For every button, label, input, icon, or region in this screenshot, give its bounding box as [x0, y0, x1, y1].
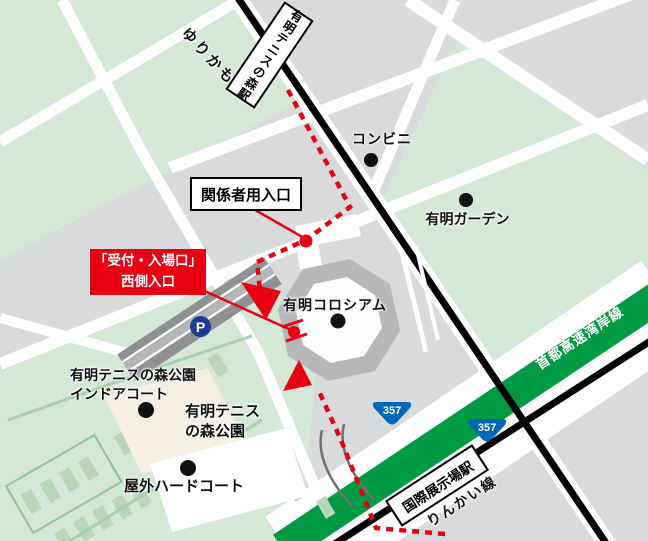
- staff-entrance-dot: [300, 235, 313, 248]
- indoor-court-dot: [138, 402, 154, 418]
- staff-entrance-box: 関係者用入口: [190, 177, 302, 211]
- parking-icon: P: [190, 316, 211, 337]
- ariake-garden-dot: [459, 193, 473, 207]
- indoor-court-label: 有明テニスの森公園 インドアコート: [70, 366, 196, 404]
- tennis-park-line2: の森公園: [185, 422, 260, 442]
- coliseum-label: 有明コロシアム: [283, 296, 386, 315]
- ariake-garden-label: 有明ガーデン: [421, 210, 514, 229]
- indoor-court-line1: 有明テニスの森公園: [70, 366, 196, 385]
- shield-number: 357: [478, 422, 496, 434]
- shield-number: 357: [383, 405, 401, 417]
- convenience-store-label: コンビニ: [341, 130, 423, 149]
- parking-letter: P: [196, 319, 205, 335]
- reception-line1: 「受付・入場口」: [94, 251, 202, 272]
- staff-entrance-label: 関係者用入口: [201, 184, 291, 205]
- outdoor-court-label: 屋外ハードコート: [121, 477, 247, 497]
- area-map: 357 357 ゆりかもめ 有明テニスの森駅 コンビニ 関係者用入口 有明ガーデ…: [0, 0, 648, 541]
- tennis-park-label: 有明テニス の森公園: [185, 402, 260, 443]
- reception-entrance-box: 「受付・入場口」 西側入口: [90, 249, 206, 295]
- convenience-store-dot: [364, 153, 378, 167]
- coliseum-dot: [331, 314, 346, 329]
- indoor-court-line2: インドアコート: [70, 385, 196, 404]
- outdoor-court-dot: [180, 460, 196, 476]
- tennis-park-line1: 有明テニス: [185, 402, 260, 422]
- reception-line2: 西側入口: [121, 272, 175, 293]
